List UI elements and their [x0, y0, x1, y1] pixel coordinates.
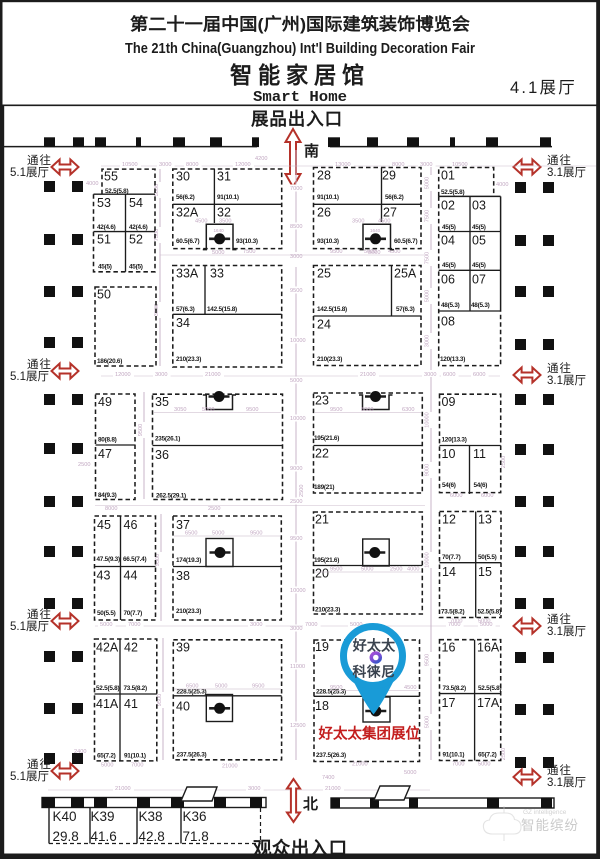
svg-text:2500: 2500	[390, 567, 402, 573]
svg-text:91(10.1): 91(10.1)	[443, 752, 465, 759]
svg-text:通往: 通往	[547, 612, 572, 626]
svg-text:3000: 3000	[154, 304, 160, 316]
svg-text:06: 06	[441, 273, 455, 287]
svg-text:5000: 5000	[425, 177, 431, 189]
svg-text:4000: 4000	[86, 181, 98, 187]
svg-text:27: 27	[383, 206, 397, 220]
svg-text:174(19.3): 174(19.3)	[176, 557, 201, 564]
svg-text:26: 26	[317, 206, 331, 220]
svg-text:33A: 33A	[176, 267, 199, 281]
svg-text:46: 46	[124, 518, 138, 532]
svg-text:42.8: 42.8	[139, 829, 165, 844]
svg-text:237.5(26.3): 237.5(26.3)	[316, 752, 346, 759]
svg-text:5.1展厅: 5.1展厅	[10, 620, 49, 633]
svg-text:04: 04	[441, 234, 455, 248]
svg-text:K38: K38	[139, 809, 163, 824]
svg-text:4500: 4500	[378, 219, 390, 225]
svg-text:52.5(5.8): 52.5(5.8)	[96, 685, 119, 692]
svg-text:195(21.6): 195(21.6)	[314, 435, 339, 442]
svg-text:21000: 21000	[222, 764, 238, 770]
svg-text:50(5.5): 50(5.5)	[97, 610, 116, 617]
svg-text:3500: 3500	[352, 219, 364, 225]
svg-text:41: 41	[124, 697, 138, 711]
svg-text:12: 12	[442, 513, 456, 527]
svg-text:21000: 21000	[360, 372, 376, 378]
svg-text:57(6.3): 57(6.3)	[176, 306, 195, 313]
svg-text:4500: 4500	[195, 219, 207, 225]
svg-text:40: 40	[176, 700, 190, 714]
svg-text:28: 28	[317, 169, 331, 183]
svg-text:5000: 5000	[215, 684, 227, 690]
svg-text:34: 34	[176, 316, 190, 330]
svg-text:22: 22	[315, 447, 329, 461]
svg-text:10000: 10000	[290, 588, 306, 594]
svg-text:03: 03	[472, 199, 486, 213]
svg-text:9000: 9000	[290, 466, 302, 472]
svg-text:66.5(7.4): 66.5(7.4)	[123, 556, 146, 563]
svg-text:7400: 7400	[322, 775, 334, 781]
svg-text:观众出入口: 观众出入口	[253, 838, 348, 859]
svg-text:60.5(6.7): 60.5(6.7)	[394, 238, 417, 245]
svg-text:42A: 42A	[96, 641, 119, 655]
svg-text:5000: 5000	[404, 770, 416, 776]
svg-text:52: 52	[129, 233, 143, 247]
svg-text:4200: 4200	[255, 156, 267, 162]
svg-text:4.1展厅: 4.1展厅	[510, 79, 577, 97]
svg-text:55: 55	[104, 170, 118, 184]
svg-text:50: 50	[97, 288, 111, 302]
svg-text:K40: K40	[53, 809, 77, 824]
svg-text:38: 38	[176, 569, 190, 583]
svg-text:通往: 通往	[547, 361, 572, 375]
svg-text:智能家居馆: 智能家居馆	[230, 62, 370, 88]
svg-text:186(20.6): 186(20.6)	[97, 358, 122, 365]
svg-text:7000: 7000	[131, 763, 143, 769]
svg-text:科徕尼: 科徕尼	[353, 664, 396, 680]
svg-text:70(7.7): 70(7.7)	[442, 554, 461, 561]
svg-text:7000: 7000	[452, 762, 464, 768]
svg-text:南: 南	[304, 142, 319, 160]
svg-text:11000: 11000	[290, 664, 305, 670]
svg-text:21: 21	[315, 513, 329, 527]
svg-text:2500: 2500	[208, 506, 220, 512]
svg-text:1640: 1640	[370, 228, 381, 233]
svg-text:73.5(8.2): 73.5(8.2)	[441, 609, 464, 616]
svg-text:50(5.5): 50(5.5)	[478, 554, 497, 561]
svg-text:K36: K36	[183, 809, 207, 824]
svg-text:10000: 10000	[425, 412, 431, 428]
svg-text:5000: 5000	[100, 622, 112, 628]
svg-text:42(4.6): 42(4.6)	[129, 224, 148, 231]
svg-text:5000: 5000	[478, 762, 490, 768]
svg-text:05: 05	[472, 234, 486, 248]
svg-text:9500: 9500	[246, 407, 258, 413]
svg-text:3050: 3050	[174, 407, 186, 413]
svg-text:54(6): 54(6)	[474, 482, 488, 489]
svg-text:01: 01	[441, 169, 455, 183]
svg-text:3000: 3000	[424, 372, 436, 378]
svg-text:23: 23	[315, 394, 329, 408]
svg-text:好太太: 好太太	[352, 638, 396, 654]
svg-text:9500: 9500	[157, 694, 163, 706]
svg-text:54(6): 54(6)	[442, 482, 456, 489]
svg-text:210(23.3): 210(23.3)	[176, 608, 201, 615]
svg-text:08: 08	[441, 315, 455, 329]
svg-text:3000: 3000	[290, 626, 302, 632]
svg-text:36: 36	[155, 448, 169, 462]
svg-text:65(7.2): 65(7.2)	[478, 752, 497, 759]
svg-text:5000: 5000	[425, 290, 431, 302]
svg-text:5.1展厅: 5.1展厅	[10, 770, 49, 783]
svg-text:47.5(9.3): 47.5(9.3)	[97, 556, 120, 563]
svg-text:3.1展厅: 3.1展厅	[547, 625, 586, 638]
svg-text:39: 39	[176, 641, 190, 655]
svg-text:10000: 10000	[290, 338, 306, 344]
svg-text:52.5(5.8): 52.5(5.8)	[441, 189, 464, 196]
svg-text:3000: 3000	[248, 786, 260, 792]
svg-text:53: 53	[97, 196, 111, 210]
svg-text:10500: 10500	[122, 162, 138, 168]
svg-text:07: 07	[472, 273, 486, 287]
svg-text:9500: 9500	[330, 249, 342, 255]
svg-text:93(10.3): 93(10.3)	[317, 238, 339, 245]
svg-text:30: 30	[176, 170, 190, 184]
svg-text:09: 09	[442, 395, 456, 409]
svg-text:45(5): 45(5)	[442, 224, 456, 231]
svg-text:73.5(8.2): 73.5(8.2)	[124, 685, 147, 692]
svg-text:4000: 4000	[407, 567, 419, 573]
svg-text:210(23.3): 210(23.3)	[315, 607, 340, 614]
svg-text:通往: 通往	[547, 153, 572, 167]
svg-text:142.5(15.8): 142.5(15.8)	[317, 306, 347, 313]
svg-text:52.5(5.8): 52.5(5.8)	[478, 609, 501, 616]
svg-text:228.5(25.3): 228.5(25.3)	[177, 689, 207, 696]
svg-text:142.5(15.8): 142.5(15.8)	[207, 306, 237, 313]
svg-text:11: 11	[473, 447, 486, 461]
svg-text:48(5.3): 48(5.3)	[471, 302, 490, 309]
svg-text:智能缤纷: 智能缤纷	[521, 818, 579, 833]
svg-text:10000: 10000	[425, 552, 431, 568]
svg-text:60.5(6.7): 60.5(6.7)	[176, 238, 199, 245]
svg-text:8000: 8000	[186, 162, 198, 168]
svg-text:8000: 8000	[105, 506, 117, 512]
svg-text:21000: 21000	[325, 786, 341, 792]
svg-text:第二十一届中国(广州)国际建筑装饰博览会: 第二十一届中国(广州)国际建筑装饰博览会	[130, 14, 470, 34]
svg-text:45(5): 45(5)	[442, 262, 456, 269]
svg-text:6300: 6300	[402, 407, 414, 413]
svg-text:10000: 10000	[290, 416, 306, 422]
svg-text:41A: 41A	[96, 697, 119, 711]
svg-text:6500: 6500	[185, 531, 197, 537]
svg-text:12500: 12500	[290, 723, 306, 729]
svg-text:9500: 9500	[138, 424, 144, 436]
svg-text:9500: 9500	[252, 684, 264, 690]
svg-text:47: 47	[98, 447, 112, 461]
svg-text:9500: 9500	[290, 536, 302, 542]
svg-text:K39: K39	[91, 809, 115, 824]
svg-text:北: 北	[303, 796, 318, 813]
svg-text:32: 32	[217, 206, 231, 220]
svg-text:35: 35	[155, 395, 169, 409]
svg-text:5000: 5000	[361, 407, 373, 413]
svg-text:Smart Home: Smart Home	[253, 89, 347, 106]
svg-text:49: 49	[98, 395, 112, 409]
svg-text:通往: 通往	[27, 153, 52, 167]
svg-text:7000: 7000	[305, 622, 317, 628]
svg-text:21000: 21000	[205, 372, 221, 378]
svg-text:80(8.8): 80(8.8)	[98, 437, 117, 444]
svg-text:52.5(5.8): 52.5(5.8)	[478, 685, 501, 692]
svg-text:91(10.1): 91(10.1)	[124, 753, 146, 760]
svg-text:5.1展厅: 5.1展厅	[10, 166, 49, 179]
svg-text:210(23.3): 210(23.3)	[317, 356, 342, 363]
svg-text:31: 31	[217, 170, 231, 184]
svg-text:8500: 8500	[290, 224, 302, 230]
svg-text:52.5(5.8): 52.5(5.8)	[105, 188, 128, 195]
svg-text:9500: 9500	[250, 531, 262, 537]
svg-text:42: 42	[124, 641, 138, 655]
svg-text:2500: 2500	[501, 748, 507, 760]
svg-text:6000: 6000	[450, 493, 462, 499]
svg-text:29.8: 29.8	[53, 829, 79, 844]
svg-text:21000: 21000	[115, 786, 131, 792]
svg-text:48(5.3): 48(5.3)	[441, 302, 460, 309]
svg-text:9500: 9500	[330, 407, 342, 413]
svg-text:3000: 3000	[425, 335, 431, 347]
svg-text:262.5(29.1): 262.5(29.1)	[156, 493, 186, 500]
svg-text:91(10.1): 91(10.1)	[217, 194, 239, 201]
svg-text:2500: 2500	[501, 456, 507, 468]
svg-text:3.1展厅: 3.1展厅	[547, 776, 586, 789]
svg-text:2500: 2500	[78, 462, 90, 468]
svg-text:18: 18	[315, 699, 329, 713]
svg-text:16: 16	[442, 641, 456, 655]
svg-text:120(13.3): 120(13.3)	[442, 437, 467, 444]
svg-text:12000: 12000	[115, 372, 131, 378]
svg-text:通往: 通往	[547, 763, 572, 777]
svg-text:3000: 3000	[420, 162, 432, 168]
svg-text:56(6.2): 56(6.2)	[176, 194, 195, 201]
svg-text:17: 17	[442, 696, 456, 710]
svg-text:93(10.3): 93(10.3)	[236, 238, 258, 245]
svg-text:2500: 2500	[299, 485, 305, 497]
svg-text:65(7.2): 65(7.2)	[97, 753, 116, 760]
svg-text:7500: 7500	[425, 210, 431, 222]
svg-text:3500: 3500	[219, 219, 231, 225]
svg-text:32A: 32A	[176, 206, 199, 220]
svg-text:展品出入口: 展品出入口	[251, 109, 343, 129]
svg-text:15: 15	[478, 565, 492, 579]
svg-text:57(6.3): 57(6.3)	[396, 306, 415, 313]
svg-text:通往: 通往	[27, 607, 52, 621]
svg-text:5000: 5000	[212, 250, 224, 256]
svg-text:6000: 6000	[473, 372, 485, 378]
svg-text:5000: 5000	[101, 763, 113, 769]
svg-text:120(13.3): 120(13.3)	[440, 356, 465, 363]
svg-text:45(5): 45(5)	[472, 262, 486, 269]
svg-text:9500: 9500	[425, 654, 431, 666]
svg-text:33: 33	[210, 267, 224, 281]
svg-text:7000: 7000	[450, 619, 462, 625]
svg-text:2400: 2400	[74, 749, 86, 755]
svg-text:7000: 7000	[290, 186, 302, 192]
svg-text:16A: 16A	[477, 641, 500, 655]
svg-text:17A: 17A	[477, 696, 500, 710]
svg-text:4000: 4000	[496, 182, 508, 188]
svg-text:5000: 5000	[290, 378, 302, 384]
svg-text:3.1展厅: 3.1展厅	[547, 374, 586, 387]
svg-text:6000: 6000	[481, 493, 493, 499]
svg-text:好太太集团展位: 好太太集团展位	[318, 725, 421, 743]
svg-text:3000: 3000	[159, 162, 171, 168]
svg-text:GZ intelligence: GZ intelligence	[523, 809, 567, 816]
svg-text:42(4.6): 42(4.6)	[97, 224, 116, 231]
svg-text:91(10.1): 91(10.1)	[317, 194, 339, 201]
svg-text:13: 13	[478, 513, 492, 527]
svg-text:235(26.1): 235(26.1)	[155, 436, 180, 443]
svg-text:5000: 5000	[212, 531, 224, 537]
svg-text:3000: 3000	[250, 622, 262, 628]
svg-text:21000: 21000	[352, 762, 368, 768]
svg-text:The 21th China(Guangzhou) Int': The 21th China(Guangzhou) Int'l Building…	[125, 40, 475, 57]
svg-text:25A: 25A	[394, 267, 417, 281]
svg-text:44: 44	[124, 569, 138, 583]
svg-text:12000: 12000	[235, 162, 251, 168]
svg-text:5000: 5000	[361, 567, 373, 573]
svg-text:5000: 5000	[368, 250, 380, 256]
svg-text:5000: 5000	[202, 407, 214, 413]
svg-text:5000: 5000	[478, 619, 490, 625]
svg-text:84(9.3): 84(9.3)	[98, 492, 117, 499]
svg-text:45: 45	[97, 518, 111, 532]
svg-text:20: 20	[315, 567, 329, 581]
svg-text:14: 14	[442, 565, 456, 579]
svg-text:7000: 7000	[128, 622, 140, 628]
svg-text:24: 24	[317, 318, 331, 332]
svg-text:7500: 7500	[425, 252, 431, 264]
svg-text:237.5(26.3): 237.5(26.3)	[177, 752, 207, 759]
svg-text:9000: 9000	[425, 464, 431, 476]
svg-text:4500: 4500	[404, 685, 416, 691]
svg-text:19: 19	[315, 640, 329, 654]
svg-text:5000: 5000	[425, 716, 431, 728]
svg-text:45(5): 45(5)	[129, 264, 143, 271]
svg-text:43: 43	[97, 569, 111, 583]
svg-text:02: 02	[441, 199, 455, 213]
svg-text:通往: 通往	[27, 757, 52, 771]
svg-text:1640: 1640	[214, 228, 225, 233]
svg-text:45(5): 45(5)	[98, 264, 112, 271]
svg-text:45(5): 45(5)	[472, 224, 486, 231]
svg-text:41.6: 41.6	[91, 829, 117, 844]
svg-text:6000: 6000	[443, 372, 455, 378]
svg-text:2500: 2500	[290, 499, 302, 505]
svg-text:3000: 3000	[155, 372, 167, 378]
svg-text:51: 51	[97, 233, 111, 247]
svg-text:5.1展厅: 5.1展厅	[10, 370, 49, 383]
svg-text:通往: 通往	[27, 357, 52, 371]
svg-text:25: 25	[317, 267, 331, 281]
svg-text:210(23.3): 210(23.3)	[176, 356, 201, 363]
svg-text:10: 10	[442, 447, 456, 461]
svg-text:9500: 9500	[330, 567, 342, 573]
svg-text:189(21): 189(21)	[314, 484, 334, 491]
svg-text:3.1展厅: 3.1展厅	[547, 166, 586, 179]
svg-text:70(7.7): 70(7.7)	[124, 610, 143, 617]
svg-text:195(21.6): 195(21.6)	[314, 557, 339, 564]
svg-text:6500: 6500	[186, 684, 198, 690]
svg-text:9500: 9500	[330, 685, 342, 691]
svg-text:29: 29	[382, 169, 396, 183]
svg-text:9500: 9500	[290, 288, 302, 294]
svg-text:54: 54	[129, 196, 143, 210]
svg-text:71.8: 71.8	[183, 829, 209, 844]
svg-text:73.5(8.2): 73.5(8.2)	[443, 685, 466, 692]
svg-text:7500: 7500	[243, 249, 255, 255]
svg-text:56(6.2): 56(6.2)	[385, 194, 404, 201]
